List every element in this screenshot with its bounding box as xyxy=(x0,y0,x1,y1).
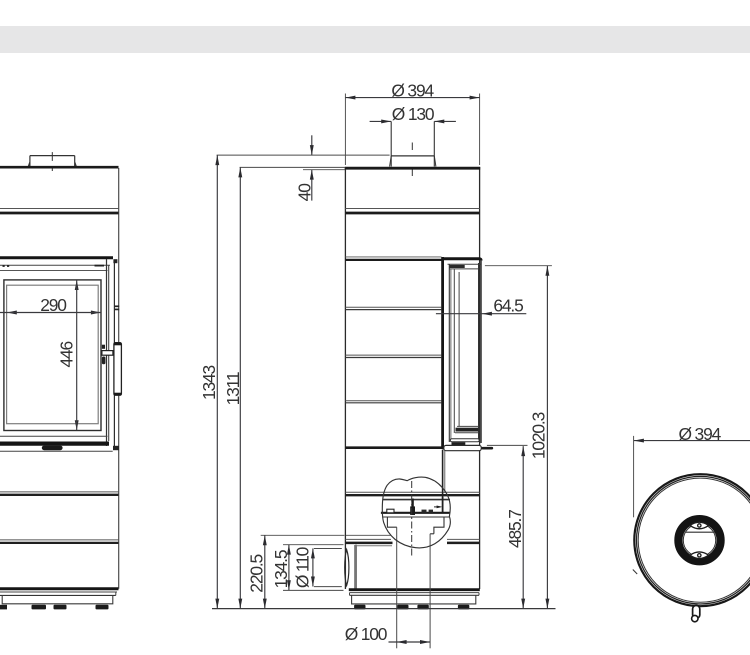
svg-text:1020.3: 1020.3 xyxy=(528,412,548,459)
svg-text:Ø 110: Ø 110 xyxy=(293,547,313,588)
svg-text:Ø 394: Ø 394 xyxy=(391,80,434,100)
svg-text:40: 40 xyxy=(295,184,315,202)
svg-text:1343: 1343 xyxy=(199,365,219,400)
svg-text:64.5: 64.5 xyxy=(493,295,523,315)
svg-text:485.7: 485.7 xyxy=(505,510,525,548)
svg-text:Ø 100: Ø 100 xyxy=(345,624,387,644)
svg-text:Ø 130: Ø 130 xyxy=(392,104,434,124)
svg-text:1311: 1311 xyxy=(223,372,243,405)
svg-text:134.5: 134.5 xyxy=(271,550,291,588)
svg-text:290: 290 xyxy=(40,295,66,315)
svg-text:Ø 394: Ø 394 xyxy=(678,424,721,444)
svg-text:446: 446 xyxy=(57,341,77,367)
svg-text:220.5: 220.5 xyxy=(247,554,267,592)
